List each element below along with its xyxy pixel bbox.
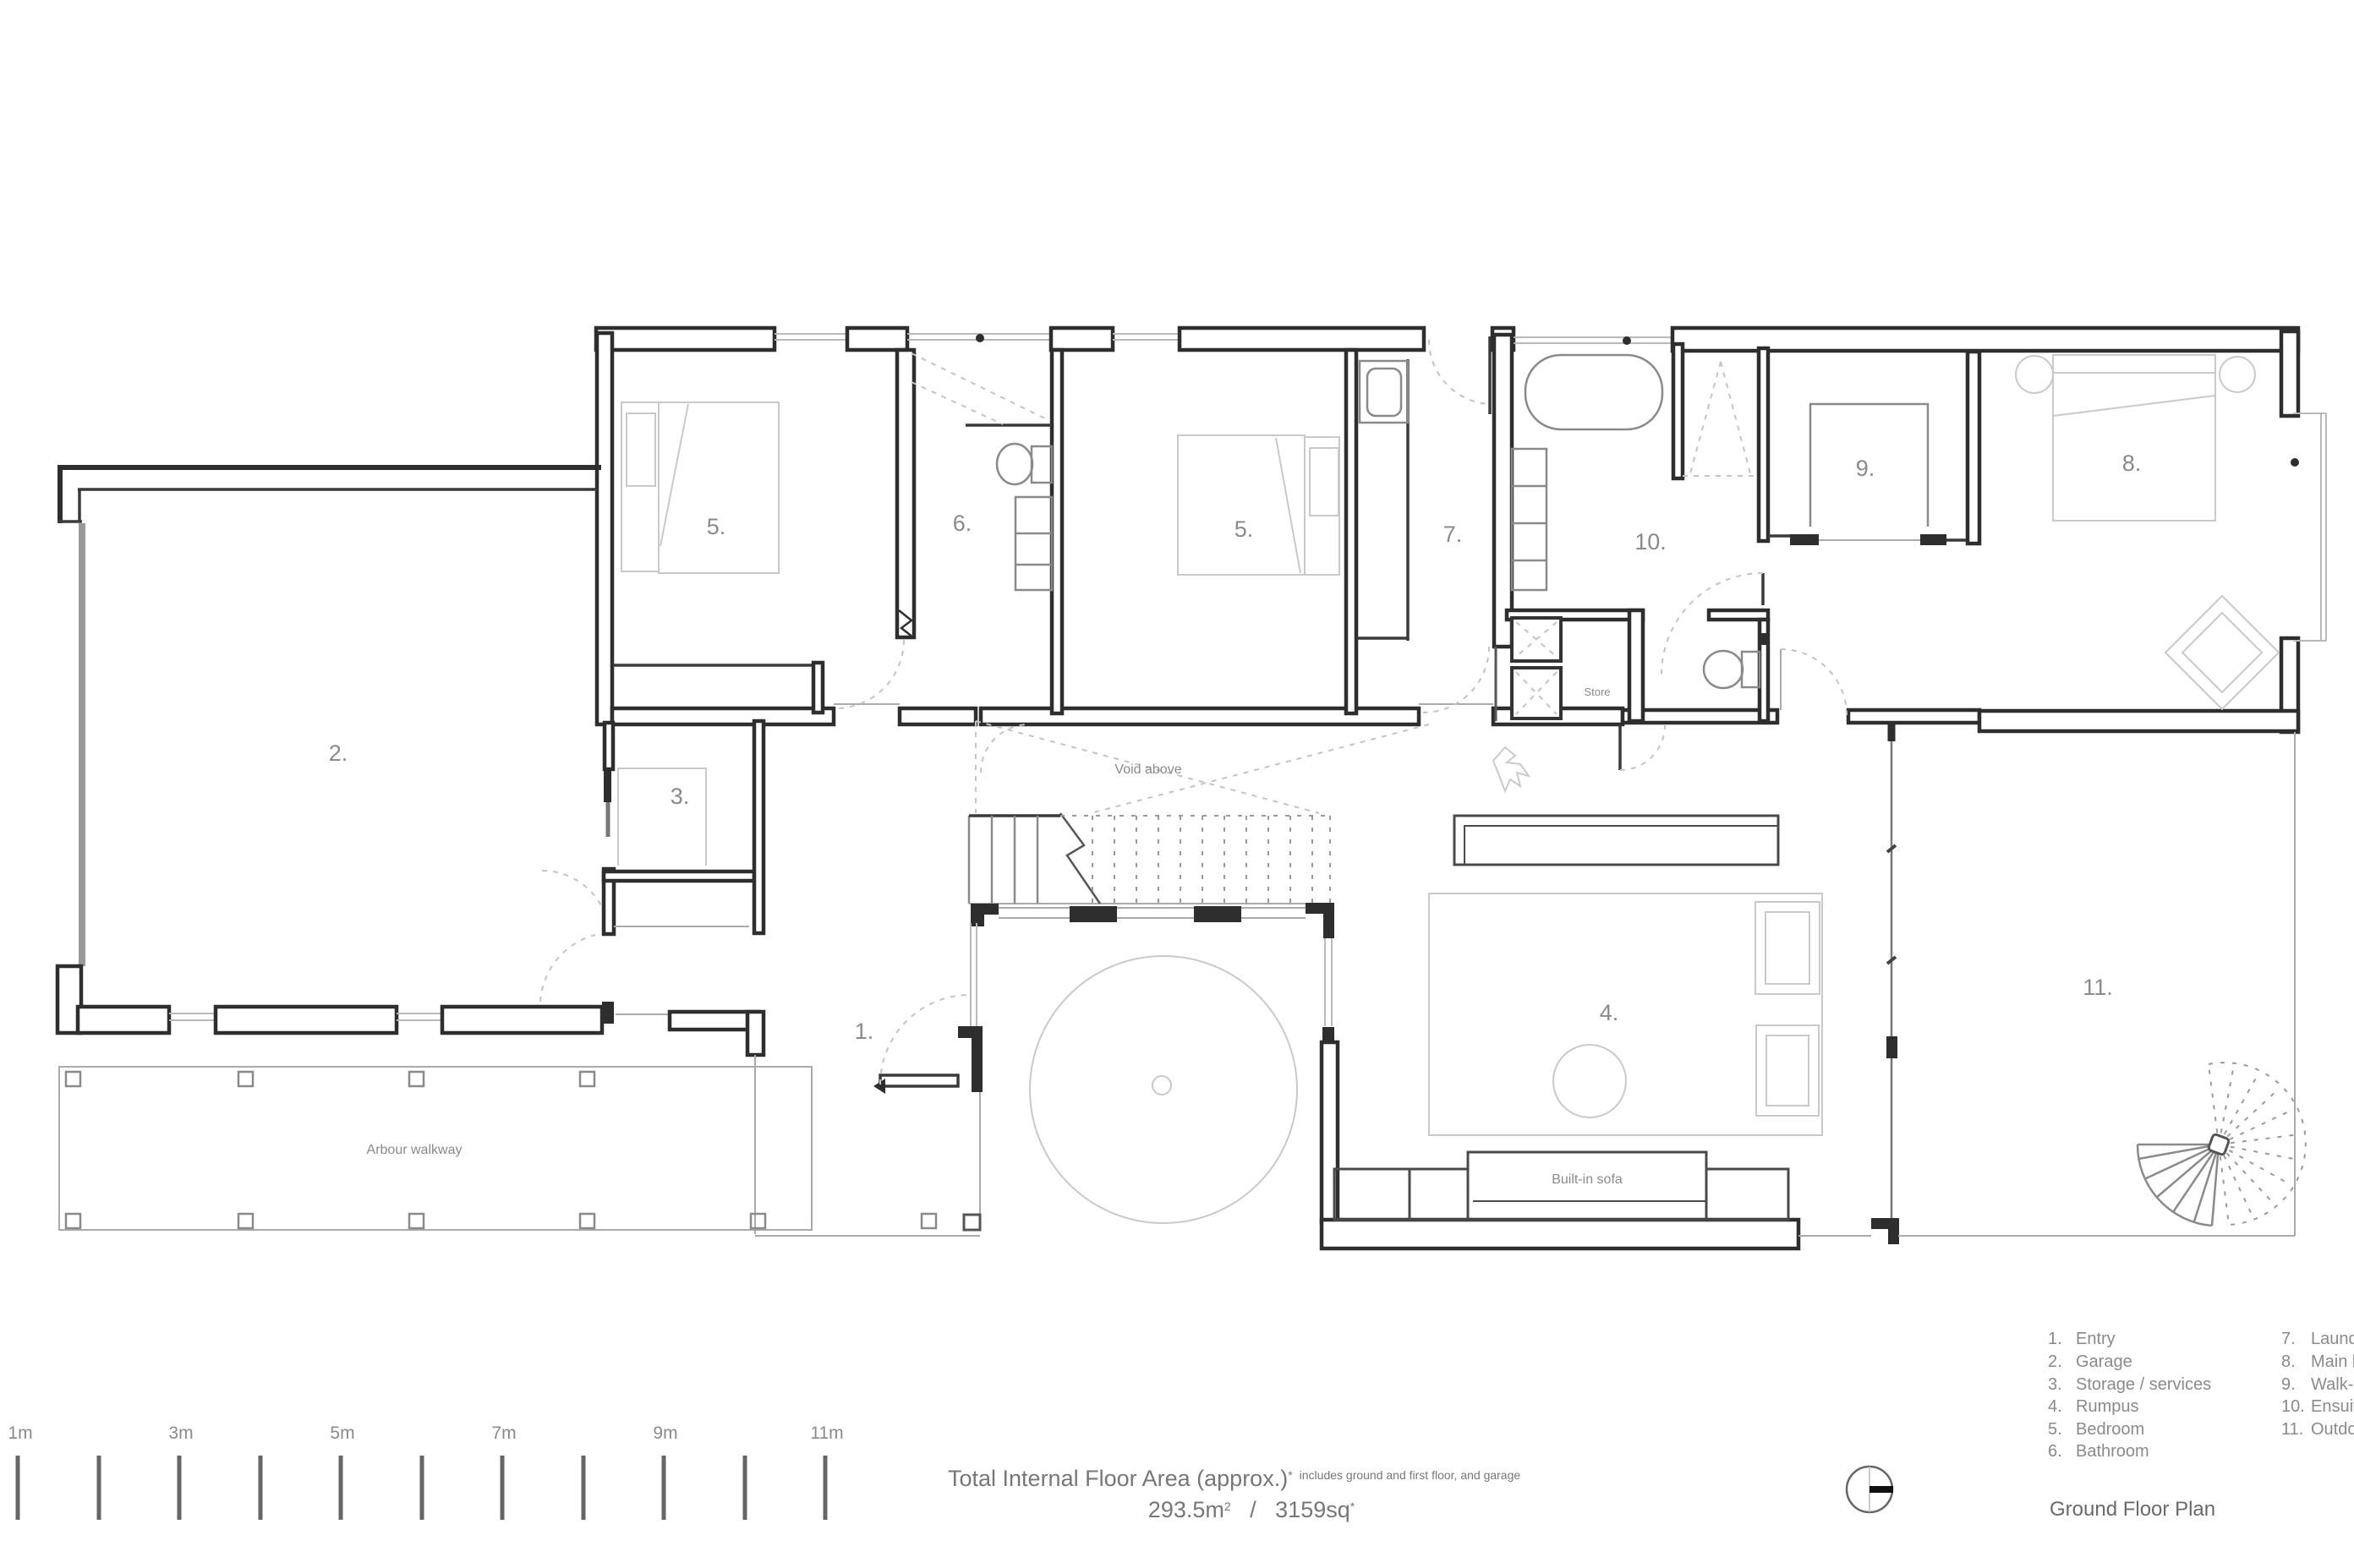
svg-text:2.: 2.	[329, 740, 348, 766]
svg-text:Garage: Garage	[2076, 1352, 2132, 1371]
svg-text:3m: 3m	[168, 1423, 193, 1443]
svg-text:7.: 7.	[2281, 1330, 2296, 1348]
svg-text:Built-in sofa: Built-in sofa	[1552, 1172, 1623, 1187]
svg-text:1.: 1.	[855, 1019, 874, 1044]
svg-text:Entry: Entry	[2076, 1330, 2116, 1348]
svg-text:11m: 11m	[810, 1423, 843, 1443]
svg-text:5m: 5m	[330, 1423, 354, 1443]
svg-text:Ground Floor Plan: Ground Floor Plan	[2050, 1498, 2215, 1521]
svg-text:10.: 10.	[2281, 1397, 2305, 1416]
svg-text:Store: Store	[1584, 686, 1610, 698]
svg-text:7.: 7.	[1443, 522, 1463, 547]
svg-text:7m: 7m	[491, 1423, 516, 1443]
svg-text:2.: 2.	[2048, 1352, 2062, 1371]
svg-text:Storage / services: Storage / services	[2076, 1375, 2211, 1394]
svg-text:Bedroom: Bedroom	[2076, 1420, 2144, 1439]
svg-text:8.: 8.	[2122, 451, 2142, 476]
svg-text:1m: 1m	[8, 1423, 32, 1443]
svg-text:Main bedroom: Main bedroom	[2311, 1352, 2354, 1371]
svg-text:4.: 4.	[2048, 1397, 2062, 1416]
svg-text:4.: 4.	[1600, 1000, 1619, 1025]
svg-text:11.: 11.	[2281, 1420, 2303, 1439]
svg-text:293.5m2 / 3159sq*: 293.5m2 / 3159sq*	[1148, 1497, 1355, 1522]
svg-text:6.: 6.	[2048, 1442, 2062, 1461]
svg-text:3.: 3.	[2048, 1375, 2062, 1394]
svg-text:5.: 5.	[707, 514, 726, 539]
svg-text:Rumpus: Rumpus	[2076, 1397, 2138, 1416]
svg-text:Bathroom: Bathroom	[2076, 1442, 2149, 1461]
svg-text:Arbour walkway: Arbour walkway	[367, 1143, 463, 1157]
svg-text:5.: 5.	[1234, 516, 1254, 542]
svg-text:9.: 9.	[1856, 456, 1875, 481]
svg-text:10.: 10.	[1634, 529, 1667, 555]
svg-text:5.: 5.	[2048, 1420, 2062, 1439]
svg-text:Void above: Void above	[1114, 762, 1181, 777]
svg-text:3.: 3.	[671, 784, 690, 809]
svg-text:1.: 1.	[2048, 1330, 2062, 1348]
svg-text:8.: 8.	[2281, 1352, 2296, 1371]
svg-text:Ensuite: Ensuite	[2311, 1397, 2354, 1416]
svg-text:9.: 9.	[2281, 1375, 2296, 1394]
svg-text:Laundry: Laundry	[2311, 1330, 2354, 1348]
svg-text:9m: 9m	[653, 1423, 677, 1443]
svg-text:11.: 11.	[2083, 975, 2113, 1000]
svg-text:Walk-in robe: Walk-in robe	[2311, 1375, 2354, 1394]
svg-text:Outdoor area: Outdoor area	[2311, 1420, 2354, 1439]
svg-text:6.: 6.	[953, 511, 972, 536]
